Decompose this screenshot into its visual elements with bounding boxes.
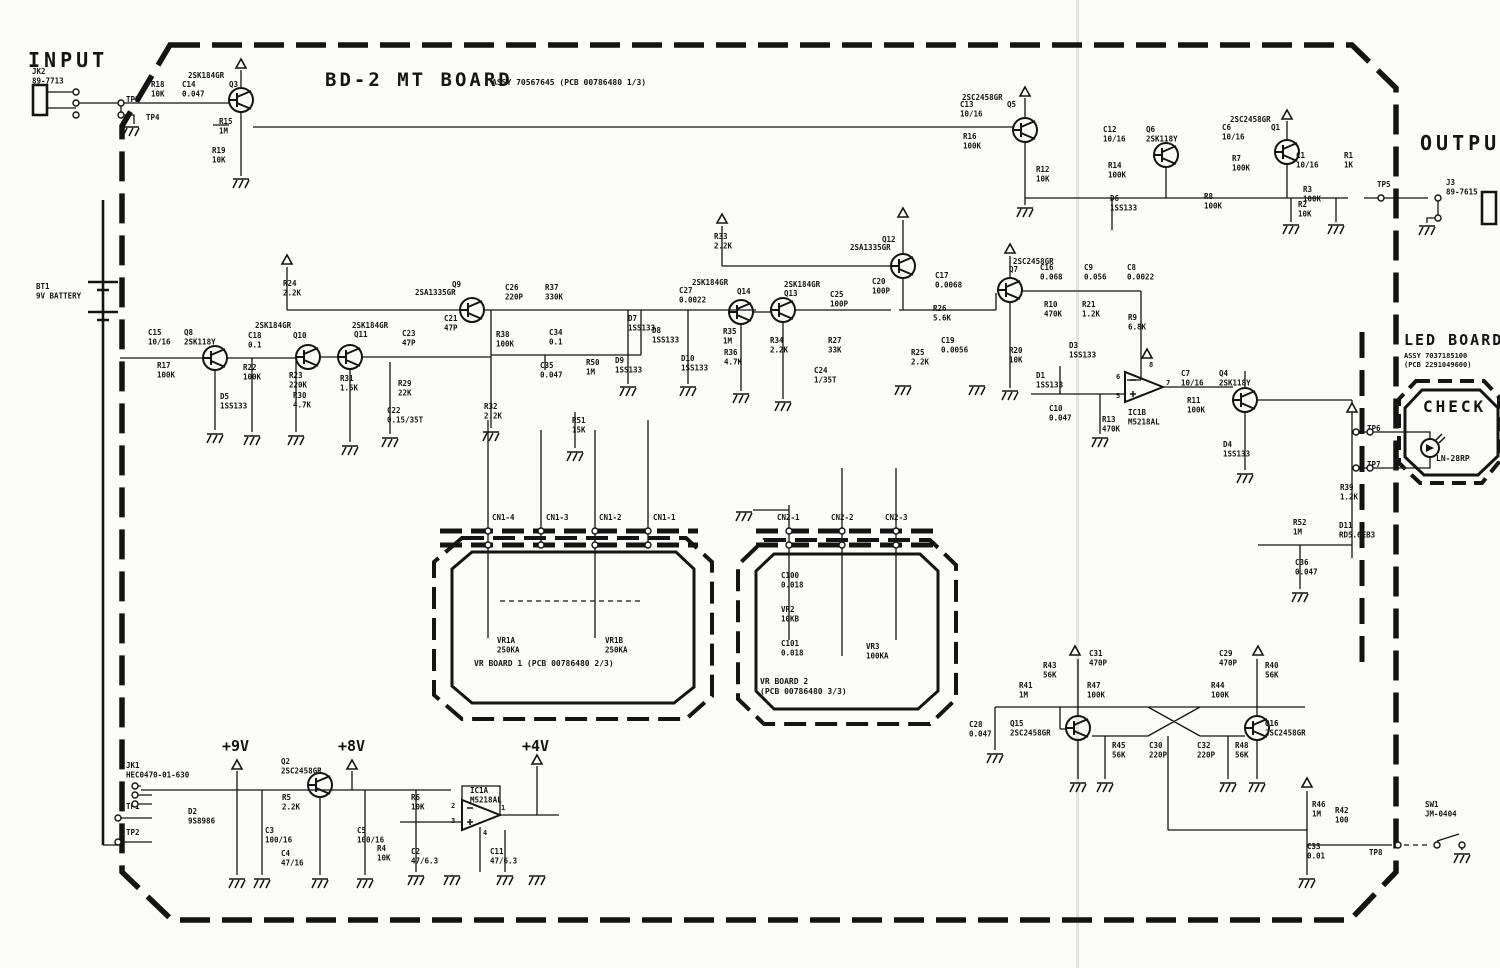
svg-text:R7100K: R7100K: [1232, 154, 1251, 172]
r42-label: R42100: [1335, 806, 1349, 824]
svg-text:R304.7K: R304.7K: [293, 391, 312, 409]
q1-part: 2SC2458GR: [1230, 115, 1271, 124]
svg-text:D61SS133: D61SS133: [1110, 194, 1138, 212]
cn1-2-pin-a: [592, 528, 598, 534]
svg-text:R265.6K: R265.6K: [933, 304, 952, 322]
schematic-page: BD-2 MT BOARD INPUTJK289-7713TP3TP4R1810…: [0, 0, 1500, 968]
q8-transistor: [203, 346, 227, 370]
vr3-label: VR3100KA: [866, 642, 889, 660]
sw1-node-a: [1434, 842, 1440, 848]
svg-text:R501M: R501M: [586, 358, 600, 376]
svg-text:R47100K: R47100K: [1087, 681, 1106, 699]
r33-label: R332.2K: [714, 232, 733, 250]
svg-text:C29470P: C29470P: [1219, 649, 1238, 667]
supply-arrow: [347, 760, 357, 769]
svg-text:R2010K: R2010K: [1009, 346, 1023, 364]
svg-text:R411M: R411M: [1019, 681, 1033, 699]
svg-text:CN2-2: CN2-2: [831, 513, 854, 522]
r8-label: R8100K: [1204, 192, 1223, 210]
svg-text:CHECK: CHECK: [1423, 397, 1486, 416]
q9-ref: Q9: [452, 280, 462, 289]
r22-label: R22100K: [243, 363, 262, 381]
c2-label: C247/6.3: [411, 847, 439, 865]
r18-label: R1810K: [151, 80, 165, 98]
tp7-node-a: [1353, 465, 1359, 471]
cn2-2-label: CN2-2: [831, 513, 854, 522]
ic1a-pin2: 2: [451, 802, 455, 810]
r11-label: R11100K: [1187, 396, 1206, 414]
c4-label: C447/16: [281, 849, 304, 867]
q6-label: Q62SK118Y: [1146, 125, 1178, 143]
jk2-ring-node: [73, 100, 79, 106]
r41-label: R411M: [1019, 681, 1033, 699]
svg-text:6: 6: [1116, 373, 1120, 381]
svg-text:C20100P: C20100P: [872, 277, 891, 295]
ic1b-pin8: 8: [1149, 361, 1153, 369]
c16-label: C160.068: [1040, 263, 1063, 281]
svg-text:Q7: Q7: [1009, 265, 1018, 274]
c9-label: C90.056: [1084, 263, 1107, 281]
r7-label: R7100K: [1232, 154, 1251, 172]
svg-text:+4V: +4V: [522, 737, 549, 755]
svg-text:TP5: TP5: [1377, 180, 1391, 189]
svg-text:CN1-2: CN1-2: [599, 513, 622, 522]
r30-label: R304.7K: [293, 391, 312, 409]
svg-text:C220.15/35T: C220.15/35T: [387, 406, 424, 424]
svg-text:7: 7: [1166, 379, 1170, 387]
svg-text:R4556K: R4556K: [1112, 741, 1126, 759]
q3-ref: Q3: [229, 80, 239, 89]
q13-transistor: [771, 298, 795, 322]
j3-sleeve-node: [1435, 215, 1441, 221]
r43-label: R4356K: [1043, 661, 1057, 679]
ground-symbol: [895, 386, 911, 395]
svg-text:C2147P: C2147P: [444, 314, 458, 332]
ic1b-pin5: 5: [1116, 392, 1120, 400]
vr1a-label: VR1A250KA: [497, 636, 520, 654]
svg-text:C360.047: C360.047: [1295, 558, 1318, 576]
r37-label: R37330K: [545, 283, 564, 301]
svg-text:D91SS133: D91SS133: [615, 356, 643, 374]
tp4-label: TP4: [146, 113, 160, 122]
r9-label: R96.8K: [1128, 313, 1147, 331]
c30-label: C30220P: [1149, 741, 1168, 759]
svg-text:+9V: +9V: [222, 737, 249, 755]
q11-ref: Q11: [354, 330, 368, 339]
r26-label: R265.6K: [933, 304, 952, 322]
q14-ref: Q14: [737, 287, 751, 296]
svg-text:BT19V BATTERY: BT19V BATTERY: [36, 282, 82, 300]
ic1a-label: IC1AM5218AL: [470, 786, 502, 804]
svg-text:LED BOARD: LED BOARD: [1404, 331, 1500, 349]
svg-text:Q82SK118Y: Q82SK118Y: [184, 328, 216, 346]
svg-text:D11RD5.6EB3: D11RD5.6EB3: [1339, 521, 1376, 539]
cn1-3-pin-b: [538, 542, 544, 548]
tp8-node: [1395, 842, 1401, 848]
board-title: BD-2 MT BOARD: [325, 69, 513, 91]
svg-text:C350.047: C350.047: [540, 361, 563, 379]
svg-text:C80.0022: C80.0022: [1127, 263, 1154, 281]
c6-label: C610/16: [1222, 123, 1245, 141]
c12-label: C1210/16: [1103, 125, 1126, 143]
tp5-node: [1378, 195, 1384, 201]
supply-arrow: [717, 214, 727, 223]
svg-text:VR1A250KA: VR1A250KA: [497, 636, 520, 654]
svg-text:C340.1: C340.1: [549, 328, 563, 346]
c14-label: C140.047: [182, 80, 205, 98]
ground-symbol: [233, 179, 249, 188]
q9-transistor: [460, 298, 484, 322]
svg-text:Q9: Q9: [452, 280, 462, 289]
svg-text:R1210K: R1210K: [1036, 165, 1050, 183]
r1-label: R11K: [1344, 151, 1354, 169]
plus9v-label: +9V: [222, 737, 249, 755]
q8-label: Q82SK118Y: [184, 328, 216, 346]
svg-text:Q22SC2458GR: Q22SC2458GR: [281, 757, 322, 775]
c29-label: C29470P: [1219, 649, 1238, 667]
j3-label: J389-7615: [1446, 178, 1478, 196]
ground-symbol: [987, 754, 1003, 763]
svg-text:CN2-3: CN2-3: [885, 513, 908, 522]
ground-symbol: [288, 436, 304, 445]
cn2-2-pin-b: [839, 542, 845, 548]
svg-text:TP3: TP3: [126, 95, 140, 104]
r40-label: R4056K: [1265, 661, 1279, 679]
ground-symbol: [775, 402, 791, 411]
dashed-link: [500, 601, 1431, 845]
svg-text:D51SS133: D51SS133: [220, 392, 248, 410]
c31-label: C31470P: [1089, 649, 1108, 667]
svg-text:C3100/16: C3100/16: [265, 826, 293, 844]
svg-text:R42100: R42100: [1335, 806, 1349, 824]
ground-symbol: [620, 387, 636, 396]
svg-text:R23220K: R23220K: [289, 371, 308, 389]
svg-text:C1210/16: C1210/16: [1103, 125, 1126, 143]
ground-symbol: [1237, 474, 1253, 483]
r45-label: R4556K: [1112, 741, 1126, 759]
svg-text:C1310/16: C1310/16: [960, 100, 983, 118]
svg-text:R351M: R351M: [723, 327, 737, 345]
d3-label: D31SS133: [1069, 341, 1097, 359]
cn1-1-pin-b: [645, 542, 651, 548]
svg-text:C1510/16: C1510/16: [148, 328, 171, 346]
svg-text:R610K: R610K: [411, 793, 425, 811]
supply-arrow: [1253, 646, 1263, 655]
svg-text:R44100K: R44100K: [1211, 681, 1230, 699]
ground-symbol: [1283, 225, 1299, 234]
cn2-2-pin-a: [839, 528, 845, 534]
ground-symbol: [1328, 225, 1344, 234]
svg-text:C90.056: C90.056: [1084, 263, 1107, 281]
r38-label: R38100K: [496, 330, 515, 348]
ic1a-pin1: 1: [501, 804, 505, 812]
bt1-label: BT19V BATTERY: [36, 282, 82, 300]
svg-text:C31470P: C31470P: [1089, 649, 1108, 667]
jk2-tip-node: [73, 89, 79, 95]
svg-text:R22100K: R22100K: [243, 363, 262, 381]
svg-text:D81SS133: D81SS133: [652, 326, 680, 344]
q10-transistor: [296, 345, 320, 369]
r14-label: R14100K: [1108, 161, 1127, 179]
plus4v-label: +4V: [522, 737, 549, 755]
svg-text:Q1: Q1: [1271, 123, 1281, 132]
r47-label: R47100K: [1087, 681, 1106, 699]
r27-label: R2733K: [828, 336, 842, 354]
ground-symbol: [1220, 783, 1236, 792]
ground-symbol: [312, 879, 328, 888]
svg-text:VR210KB: VR210KB: [781, 605, 800, 623]
svg-text:2SK184GR: 2SK184GR: [784, 280, 821, 289]
svg-text:R13470K: R13470K: [1102, 415, 1121, 433]
tp4-node: [118, 112, 124, 118]
r36-label: R364.7K: [724, 348, 743, 366]
tp6-node-b: [1367, 429, 1373, 435]
q14-transistor: [729, 300, 753, 324]
q10-ref: Q10: [293, 331, 307, 340]
r4-label: R410K: [377, 844, 391, 862]
ground-symbol: [1454, 854, 1470, 863]
svg-text:4: 4: [483, 829, 487, 837]
q11-transistor: [338, 345, 362, 369]
svg-text:R364.7K: R364.7K: [724, 348, 743, 366]
ground-symbol: [444, 876, 460, 885]
c22-label: C220.15/35T: [387, 406, 424, 424]
cn2-3-pin-a: [893, 528, 899, 534]
svg-text:+8V: +8V: [338, 737, 365, 755]
svg-text:C190.0056: C190.0056: [941, 336, 969, 354]
r23-label: R23220K: [289, 371, 308, 389]
svg-text:R311.5K: R311.5K: [340, 374, 359, 392]
led-ref: LN-28RP: [1436, 454, 1470, 463]
wire: [46, 70, 1462, 875]
c5-label: C5100/16: [357, 826, 385, 844]
c25-label: C25100P: [830, 290, 849, 308]
ground-symbol: [1097, 783, 1113, 792]
supply-arrow: [236, 59, 246, 68]
svg-text:R2922K: R2922K: [398, 379, 412, 397]
svg-text:Q62SK118Y: Q62SK118Y: [1146, 125, 1178, 143]
svg-text:SW1JM-0404: SW1JM-0404: [1425, 800, 1457, 818]
r5-label: R52.2K: [282, 793, 301, 811]
c36-label: C360.047: [1295, 558, 1318, 576]
tp1-node: [115, 815, 121, 821]
q3-transistor: [229, 88, 253, 112]
svg-text:R242.2K: R242.2K: [283, 279, 302, 297]
jk2-sleeve-node: [73, 112, 79, 118]
ic1a-pin4: 4: [483, 829, 487, 837]
svg-text:C160.068: C160.068: [1040, 263, 1063, 281]
ic1b-label: IC1BM5218AL: [1128, 408, 1160, 426]
c24-label: C241/35T: [814, 366, 837, 384]
supply-arrow: [1302, 778, 1312, 787]
q1-ref: Q1: [1271, 123, 1281, 132]
svg-text:R8100K: R8100K: [1204, 192, 1223, 210]
r10-label: R10470K: [1044, 300, 1063, 318]
d8-label: D81SS133: [652, 326, 680, 344]
svg-text:VR3100KA: VR3100KA: [866, 642, 889, 660]
c100-label: C1000.018: [781, 571, 804, 589]
svg-text:2SK184GR: 2SK184GR: [352, 321, 389, 330]
c32-label: C32220P: [1197, 741, 1216, 759]
cn1-3-label: CN1-3: [546, 513, 569, 522]
r35-label: R351M: [723, 327, 737, 345]
ground-symbol: [1419, 226, 1435, 235]
tp8-label: TP8: [1369, 848, 1383, 857]
supply-arrow: [282, 255, 292, 264]
c20-label: C20100P: [872, 277, 891, 295]
ground-symbol: [1299, 879, 1315, 888]
r25-label: R252.2K: [911, 348, 930, 366]
jk1-node-b: [132, 792, 138, 798]
svg-text:Q14: Q14: [737, 287, 751, 296]
svg-text:Q10: Q10: [293, 331, 307, 340]
svg-text:J389-7615: J389-7615: [1446, 178, 1478, 196]
svg-text:R2733K: R2733K: [828, 336, 842, 354]
scan-crease: [1076, 0, 1079, 968]
q14-part: 2SK184GR: [692, 278, 729, 287]
cn1-2-pin-b: [592, 542, 598, 548]
svg-text:C30220P: C30220P: [1149, 741, 1168, 759]
ground-symbol: [969, 386, 985, 395]
r44-label: R44100K: [1211, 681, 1230, 699]
svg-text:R521M: R521M: [1293, 518, 1307, 536]
svg-text:C100.047: C100.047: [1049, 404, 1072, 422]
ground-symbol: [408, 876, 424, 885]
svg-text:2SK184GR: 2SK184GR: [692, 278, 729, 287]
supply-arrow: [1020, 87, 1030, 96]
svg-text:R252.2K: R252.2K: [911, 348, 930, 366]
svg-text:D29S8986: D29S8986: [188, 807, 216, 825]
svg-text:R322.2K: R322.2K: [484, 402, 503, 420]
tp6-node-a: [1353, 429, 1359, 435]
ground-symbol: [342, 446, 358, 455]
q4-label: Q42SK118Y: [1219, 369, 1251, 387]
ground-symbol: [123, 127, 139, 136]
r17-label: R17100K: [157, 361, 176, 379]
cn2-3-pin-b: [893, 542, 899, 548]
svg-text:LN-28RP: LN-28RP: [1436, 454, 1470, 463]
ground-symbol: [529, 876, 545, 885]
cn1-1-label: CN1-1: [653, 513, 676, 522]
ground-symbol: [382, 438, 398, 447]
ground-symbol: [229, 879, 245, 888]
r50-label: R501M: [586, 358, 600, 376]
cn1-4-pin-b: [485, 542, 491, 548]
svg-text:D41SS133: D41SS133: [1223, 440, 1251, 458]
ground-symbol: [357, 879, 373, 888]
svg-text:2: 2: [451, 802, 455, 810]
ic1a-pin3: 3: [451, 817, 455, 825]
supply-arrow: [1142, 349, 1152, 358]
r34-label: R342.2K: [770, 336, 789, 354]
ground-symbol: [736, 512, 752, 521]
c101-label: C1010.018: [781, 639, 804, 657]
c8-label: C80.0022: [1127, 263, 1154, 281]
svg-text:R11K: R11K: [1344, 151, 1354, 169]
c34-label: C340.1: [549, 328, 563, 346]
r20-label: R2010K: [1009, 346, 1023, 364]
tp5-label: TP5: [1377, 180, 1391, 189]
sw1-label: SW1JM-0404: [1425, 800, 1457, 818]
svg-text:ASSY 70567645 (PCB 00786480 1/: ASSY 70567645 (PCB 00786480 1/3): [492, 78, 646, 87]
svg-text:CN2-1: CN2-1: [777, 513, 800, 522]
tp3-node: [118, 100, 124, 106]
c23-label: C2347P: [402, 329, 416, 347]
svg-text:C1000.018: C1000.018: [781, 571, 804, 589]
q3-part: 2SK184GR: [188, 71, 225, 80]
svg-text:VR1B250KA: VR1B250KA: [605, 636, 628, 654]
vr1b-label: VR1B250KA: [605, 636, 628, 654]
supply-arrow: [1005, 244, 1015, 253]
tp2-node: [115, 839, 121, 845]
cn1-4-label: CN1-4: [492, 513, 515, 522]
vr-board2-outline: [738, 540, 956, 724]
svg-text:C140.047: C140.047: [182, 80, 205, 98]
vr-board1-label: VR BOARD 1 (PCB 00786480 2/3): [474, 659, 614, 668]
ic1a-opamp: [462, 800, 500, 830]
svg-text:R332.2K: R332.2K: [714, 232, 733, 250]
cn2-1-label: CN2-1: [777, 513, 800, 522]
svg-text:5: 5: [1116, 392, 1120, 400]
q2-transistor: [308, 773, 332, 797]
cn1-4-pin-a: [485, 528, 491, 534]
c15-label: C1510/16: [148, 328, 171, 346]
svg-text:CN1-4: CN1-4: [492, 513, 515, 522]
svg-text:VR BOARD 2(PCB 00786480 3/3): VR BOARD 2(PCB 00786480 3/3): [760, 677, 847, 696]
d11-label: D11RD5.6EB3: [1339, 521, 1376, 539]
svg-text:2SK184GR: 2SK184GR: [188, 71, 225, 80]
d9-label: D91SS133: [615, 356, 643, 374]
svg-text:C241/35T: C241/35T: [814, 366, 837, 384]
r21-label: R211.2K: [1082, 300, 1101, 318]
supply-arrow: [898, 208, 908, 217]
supply-arrow: [1282, 110, 1292, 119]
svg-text:D31SS133: D31SS133: [1069, 341, 1097, 359]
q13-ref: Q13: [784, 289, 798, 298]
ground-symbol: [483, 432, 499, 441]
vr-board1-outline: [434, 538, 712, 719]
svg-text:3: 3: [451, 817, 455, 825]
r48-label: R4856K: [1235, 741, 1249, 759]
r19-label: R1910K: [212, 146, 226, 164]
q16-ref: Q162SC2458GR: [1265, 719, 1306, 737]
svg-text:2SA1335GR: 2SA1335GR: [415, 288, 456, 297]
svg-text:R5115K: R5115K: [572, 416, 586, 434]
vr-board2-label: VR BOARD 2(PCB 00786480 3/3): [760, 677, 847, 696]
svg-text:C2347P: C2347P: [402, 329, 416, 347]
svg-text:R17100K: R17100K: [157, 361, 176, 379]
q13-part: 2SK184GR: [784, 280, 821, 289]
r12-label: R1210K: [1036, 165, 1050, 183]
svg-text:IC1AM5218AL: IC1AM5218AL: [470, 786, 502, 804]
cn1-2-label: CN1-2: [599, 513, 622, 522]
cn1-3-pin-a: [538, 528, 544, 534]
svg-text:Q11: Q11: [354, 330, 368, 339]
q12-part: 2SA1335GR: [850, 243, 891, 252]
svg-text:D101SS133: D101SS133: [681, 354, 709, 372]
c18-label: C180.1: [248, 331, 262, 349]
c19-label: C190.0056: [941, 336, 969, 354]
plus8v-label: +8V: [338, 737, 365, 755]
svg-text:C247/6.3: C247/6.3: [411, 847, 439, 865]
ic1b-pin6: 6: [1116, 373, 1120, 381]
ground-symbol: [1092, 438, 1108, 447]
svg-text:C710/16: C710/16: [1181, 369, 1204, 387]
svg-text:Q13: Q13: [784, 289, 798, 298]
tp7-node-b: [1367, 465, 1373, 471]
svg-text:R410K: R410K: [377, 844, 391, 862]
supply-arrow: [532, 755, 542, 764]
